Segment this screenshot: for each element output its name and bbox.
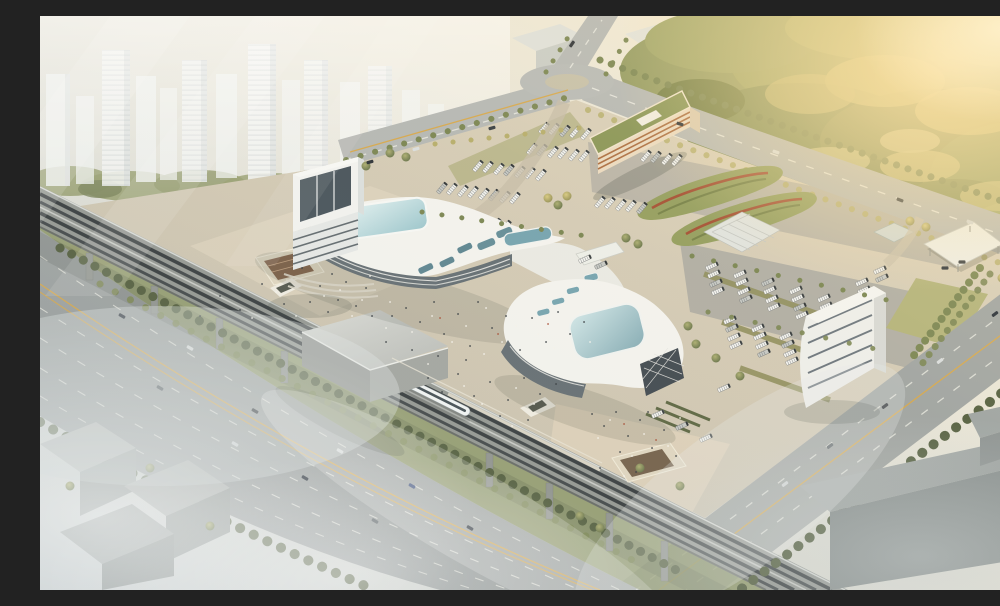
rendering-canvas: Aerial architectural rendering of an int…	[40, 16, 1000, 590]
warm-grade	[40, 16, 1000, 590]
aerial-rendering: Bird's-eye visualization of a rail-and-b…	[40, 16, 1000, 590]
atmosphere	[40, 16, 1000, 590]
